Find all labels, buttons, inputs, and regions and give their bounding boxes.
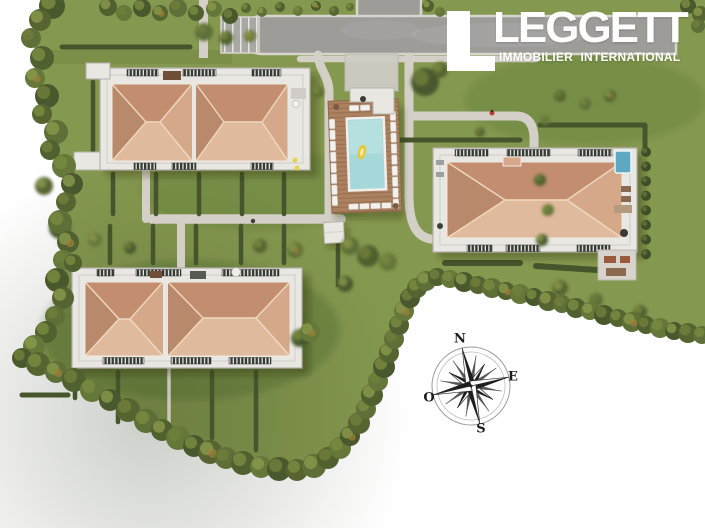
compass-south-label: S xyxy=(476,422,485,437)
hipped-roof xyxy=(447,157,622,238)
compass-north-label: N xyxy=(454,332,466,347)
planter xyxy=(150,271,162,278)
terrace-bench xyxy=(614,205,632,213)
pergola xyxy=(86,63,110,79)
hipped-roof xyxy=(85,282,290,356)
building-southwest xyxy=(72,268,302,369)
logo-subtitle: IMMOBILIER INTERNATIONAL xyxy=(499,50,680,64)
rooftop-dome xyxy=(232,268,241,277)
garden-shed xyxy=(323,221,344,243)
terrace-table xyxy=(291,88,306,99)
compass-west-label: O xyxy=(423,391,434,406)
leggett-logo: LEGGETT IMMOBILIER INTERNATIONAL xyxy=(447,9,699,71)
rooftop-table xyxy=(190,271,206,279)
compass-east-label: E xyxy=(508,370,518,385)
site-plan: N E O S LEGGETT IMMOBILIER INTERNATIONAL xyxy=(0,0,705,528)
barbecue xyxy=(620,229,628,237)
rooftop-spa xyxy=(615,151,631,173)
pergola xyxy=(74,152,100,170)
logo-title: LEGGETT xyxy=(493,6,687,50)
building-northwest xyxy=(74,63,310,171)
planter xyxy=(163,71,181,80)
site-plan-rendering xyxy=(0,0,705,528)
logo-l-mark xyxy=(447,11,495,71)
pool-area xyxy=(328,99,402,213)
yellow-parasol xyxy=(293,158,298,163)
hipped-roof xyxy=(112,84,288,161)
